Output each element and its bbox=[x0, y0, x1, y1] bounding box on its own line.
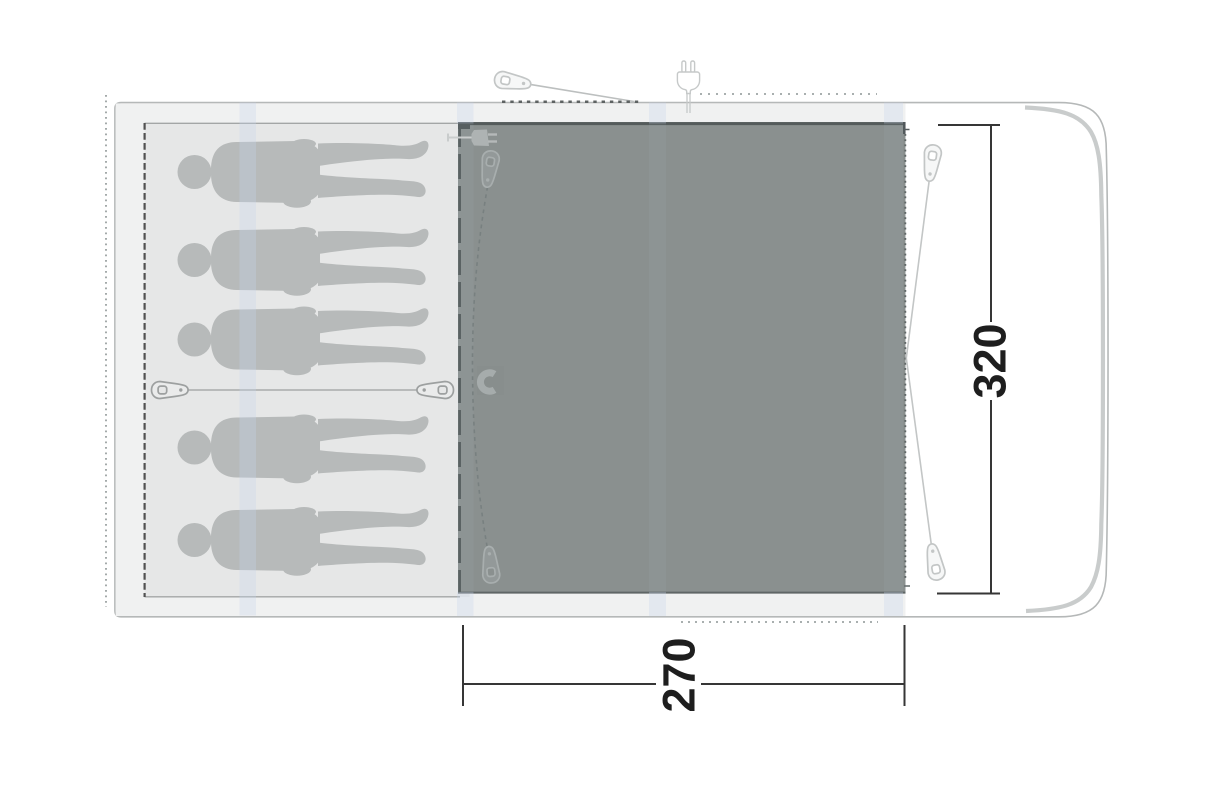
svg-text:270: 270 bbox=[654, 637, 705, 712]
svg-text:320: 320 bbox=[965, 323, 1016, 398]
